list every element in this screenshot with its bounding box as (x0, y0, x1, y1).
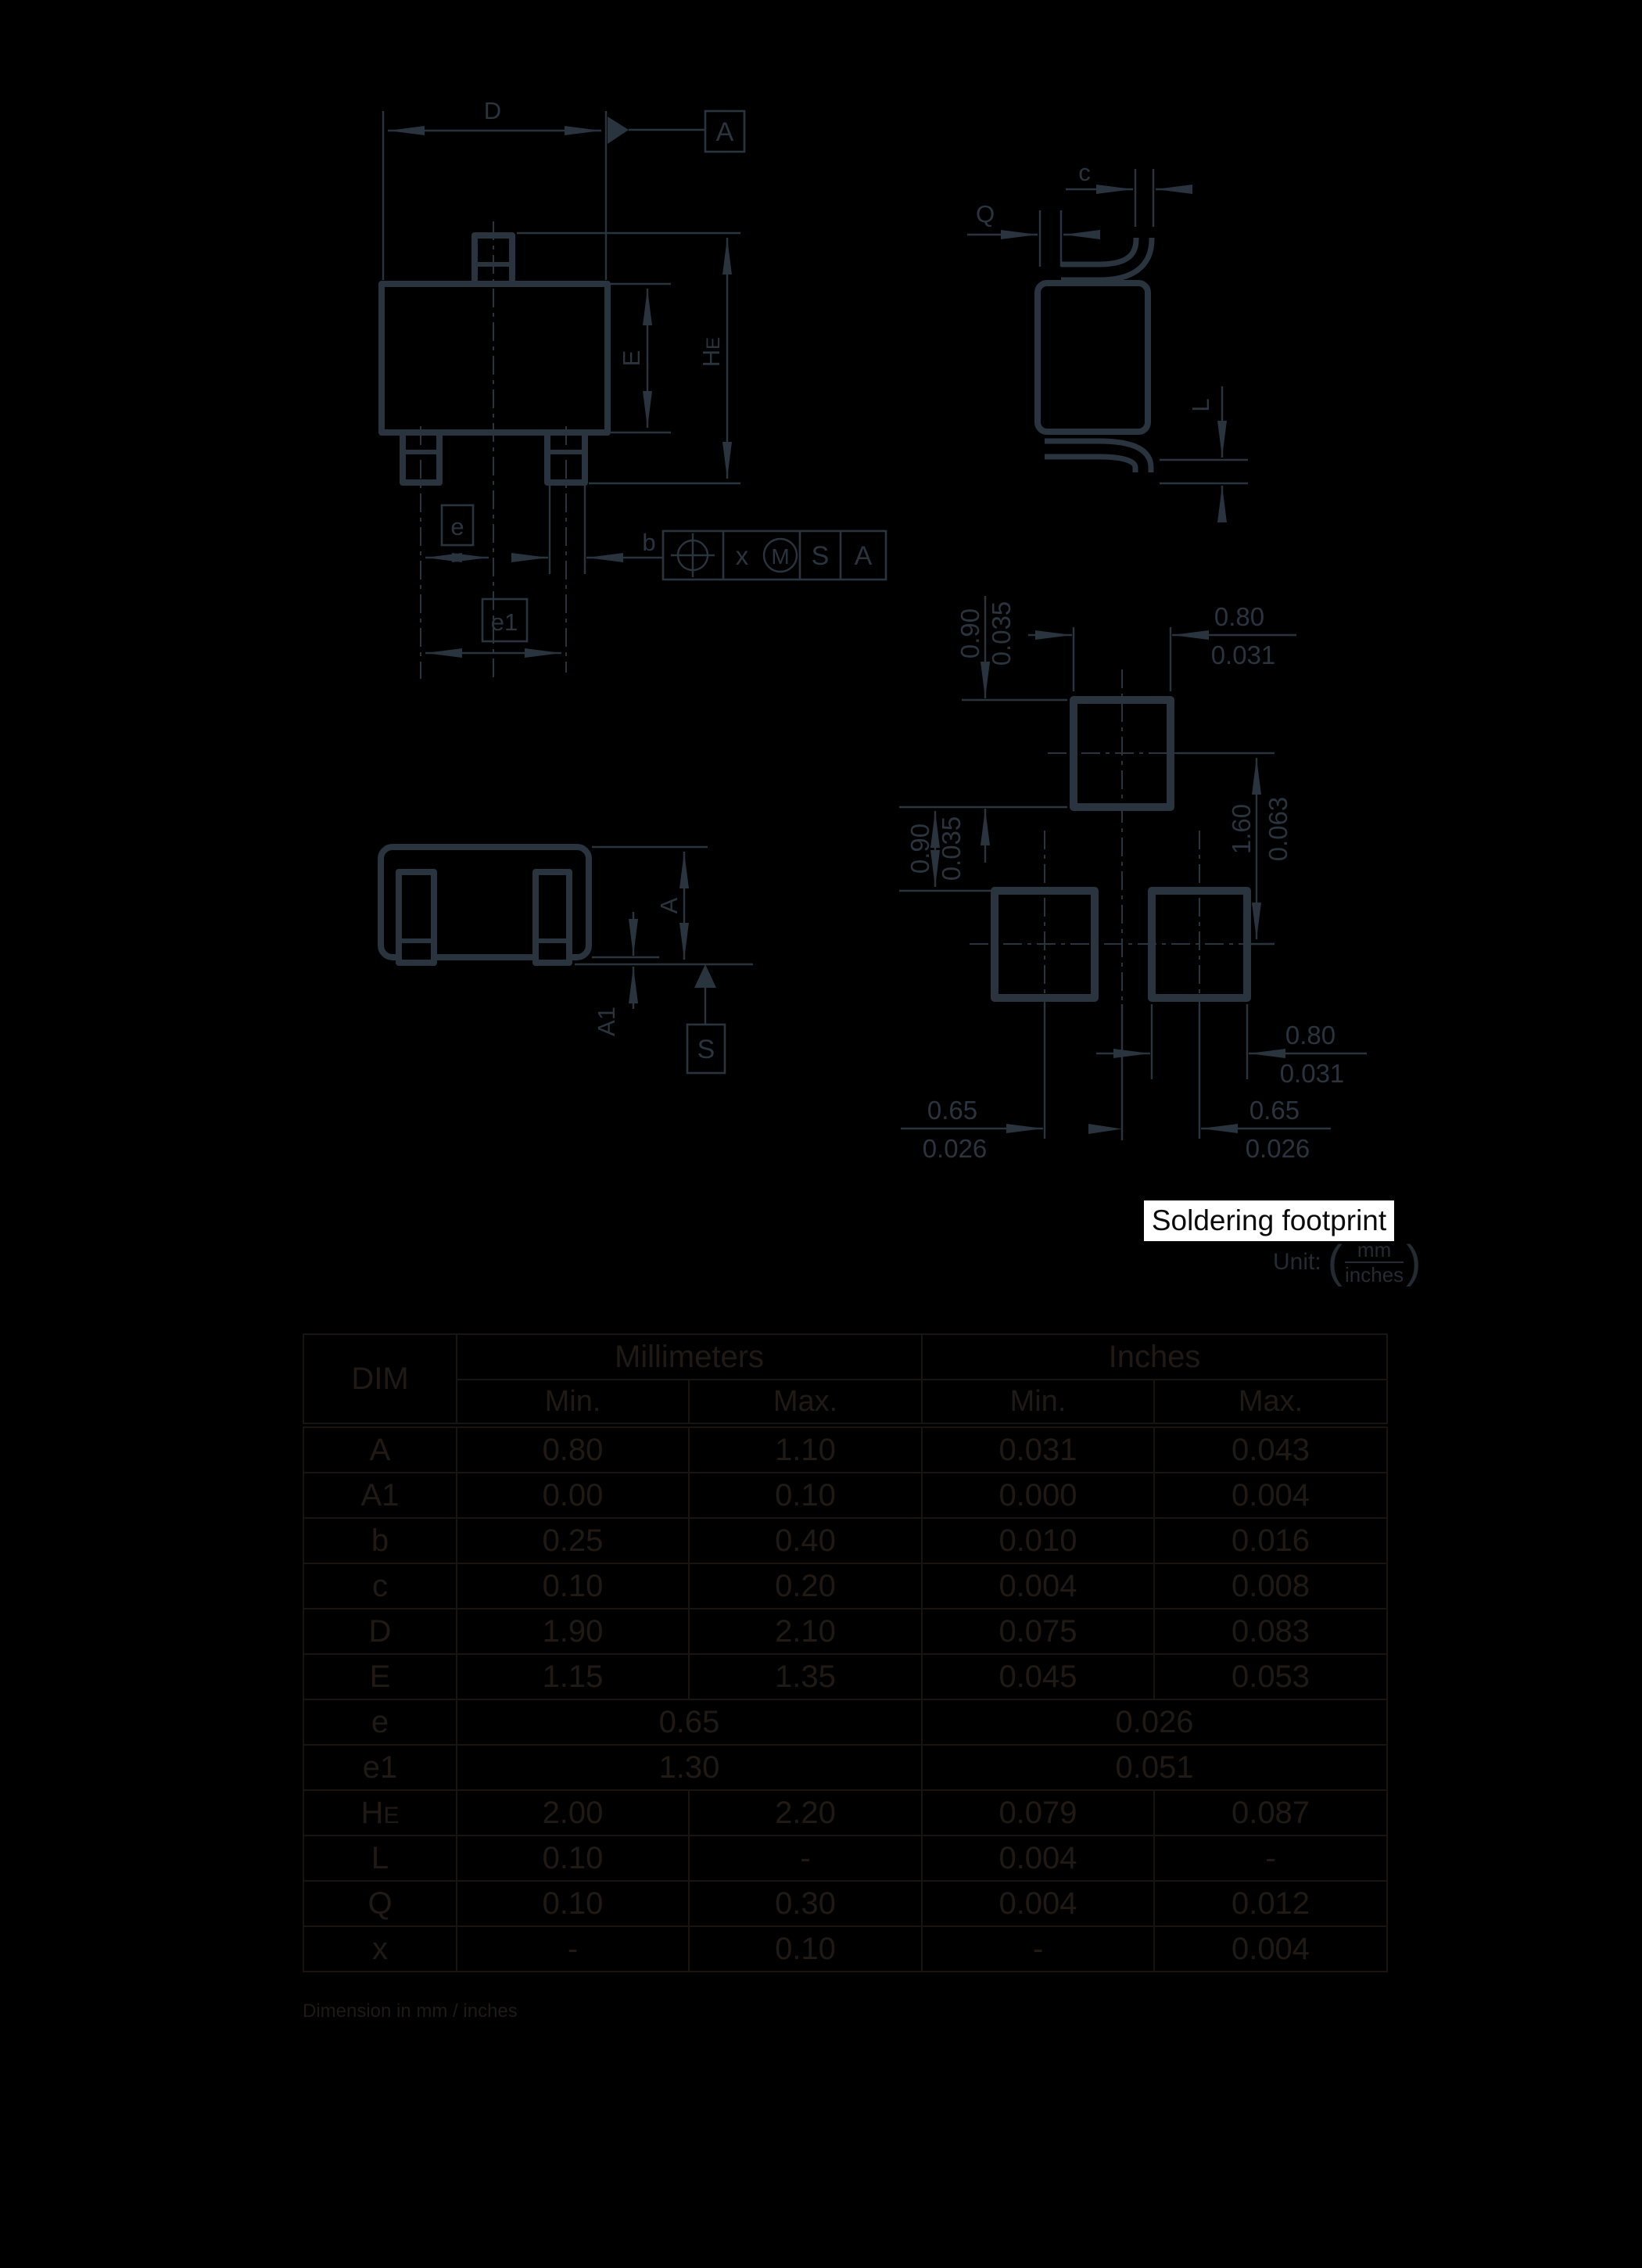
value-cell: 0.004 (1154, 1926, 1387, 1972)
datum-s-label: S (697, 1035, 715, 1064)
dim-L-label: L (1187, 398, 1214, 411)
dim-cell: A (303, 1426, 457, 1473)
value-cell: 2.00 (457, 1790, 689, 1836)
close-paren: ) (1406, 1240, 1421, 1285)
header-mm-min: Min. (457, 1380, 689, 1426)
dimension-table: DIM Millimeters Inches Min. Max. Min. Ma… (303, 1333, 1388, 1972)
value-cell: 0.004 (1154, 1473, 1387, 1518)
value-cell: 0.10 (689, 1926, 922, 1972)
value-cell: 0.087 (1154, 1790, 1387, 1836)
dim-A1: A1 (592, 912, 659, 1036)
value-cell: 1.35 (689, 1654, 922, 1699)
value-cell: 0.10 (689, 1473, 922, 1518)
table-row: E1.151.350.0450.053 (303, 1654, 1387, 1699)
dim-e: e (425, 505, 489, 558)
value-cell: 2.20 (689, 1790, 922, 1836)
fp-bot-width-mm: 0.80 (1285, 1021, 1335, 1050)
value-cell: - (922, 1926, 1154, 1972)
fp-pitch-right-in: 0.026 (1246, 1134, 1310, 1163)
dim-cell: b (303, 1518, 457, 1563)
table-row: e11.300.051 (303, 1745, 1387, 1790)
dim-b-label: b (642, 529, 655, 556)
value-cell: 0.053 (1154, 1654, 1387, 1699)
unit-fraction: mm inches (1345, 1240, 1404, 1285)
value-cell: 1.90 (457, 1609, 689, 1654)
dim-b: b (513, 486, 663, 574)
package-body-side-view (1038, 283, 1148, 432)
fcf-datum-s: S (812, 541, 830, 571)
value-cell: 0.00 (457, 1473, 689, 1518)
table-row: x-0.10-0.004 (303, 1926, 1387, 1972)
dim-cell: x (303, 1926, 457, 1972)
header-dim: DIM (303, 1334, 457, 1426)
dim-D-label: D (484, 97, 501, 124)
dim-cell: Q (303, 1881, 457, 1926)
top-view: D A E HE e e1 (382, 97, 886, 682)
value-cell: - (689, 1836, 922, 1881)
value-cell: 0.20 (689, 1563, 922, 1609)
value-cell: 0.80 (457, 1426, 689, 1473)
front-right-lead (536, 872, 569, 963)
value-cell: 0.65 (457, 1699, 922, 1745)
dim-cell: e (303, 1699, 457, 1745)
soldering-footprint-label: Soldering footprint (1144, 1200, 1394, 1241)
open-paren: ( (1328, 1240, 1343, 1285)
value-cell: 0.012 (1154, 1881, 1387, 1926)
value-cell: 0.031 (922, 1426, 1154, 1473)
unit-label: Unit: (1273, 1249, 1321, 1276)
datum-a-label: A (716, 117, 734, 147)
value-cell: 0.10 (457, 1836, 689, 1881)
fp-dim-bottom-width: 0.80 0.031 (1096, 1004, 1367, 1088)
datum-a-triangle-icon (608, 117, 629, 144)
unit-note: Unit: ( mm inches ) (1273, 1240, 1422, 1285)
fp-row-pitch-in: 0.063 (1264, 797, 1292, 862)
fp-top-pad-h-mm: 0.90 (955, 608, 984, 659)
value-cell: 0.000 (922, 1473, 1154, 1518)
fp-top-pad-h-in: 0.035 (987, 601, 1016, 666)
value-cell: 0.30 (689, 1881, 922, 1926)
value-cell: 0.004 (922, 1563, 1154, 1609)
dim-Q: Q (967, 200, 1085, 267)
value-cell: 0.045 (922, 1654, 1154, 1699)
table-row: A10.000.100.0000.004 (303, 1473, 1387, 1518)
fp-pitch-left-in: 0.026 (923, 1134, 988, 1163)
dim-e-label: e (450, 513, 464, 540)
dim-E-label: E (618, 350, 645, 367)
datum-s-triangle-icon (694, 964, 716, 988)
fp-pitch-right-mm: 0.65 (1249, 1096, 1300, 1125)
front-left-lead (399, 872, 434, 963)
side-view: c Q L (967, 159, 1248, 519)
package-outline-drawing-page: D A E HE e e1 (0, 0, 1642, 2268)
dim-cell: A1 (303, 1473, 457, 1518)
value-cell: 1.10 (689, 1426, 922, 1473)
fp-gap-mm: 0.90 (905, 824, 934, 874)
value-cell: 0.40 (689, 1518, 922, 1563)
value-cell: 0.008 (1154, 1563, 1387, 1609)
package-body-top-view (382, 284, 608, 432)
value-cell: 0.051 (922, 1745, 1387, 1790)
value-cell: 0.10 (457, 1881, 689, 1926)
mid-arrow-icon (1088, 1124, 1122, 1134)
dim-A-label: A (655, 897, 683, 913)
fp-bot-width-in: 0.031 (1280, 1059, 1345, 1088)
value-cell: - (1154, 1836, 1387, 1881)
value-cell: 0.026 (922, 1699, 1387, 1745)
fp-dim-row-pitch: 1.60 0.063 (1177, 753, 1292, 944)
fp-top-width-mm: 0.80 (1214, 602, 1264, 631)
table-row: c0.100.200.0040.008 (303, 1563, 1387, 1609)
value-cell: 0.079 (922, 1790, 1154, 1836)
table-row: b0.250.400.0100.016 (303, 1518, 1387, 1563)
table-row: D1.902.100.0750.083 (303, 1609, 1387, 1654)
value-cell: 0.083 (1154, 1609, 1387, 1654)
value-cell: 1.15 (457, 1654, 689, 1699)
fp-dim-gap: 0.90 0.035 (899, 811, 991, 891)
value-cell: 1.30 (457, 1745, 922, 1790)
fcf-modifier-m: M (771, 544, 789, 569)
dim-D: D A (383, 97, 744, 280)
dim-cell: D (303, 1609, 457, 1654)
value-cell: 0.25 (457, 1518, 689, 1563)
table-row: Q0.100.300.0040.012 (303, 1881, 1387, 1926)
value-cell: - (457, 1926, 689, 1972)
value-cell: 0.016 (1154, 1518, 1387, 1563)
header-millimeters: Millimeters (457, 1334, 922, 1380)
value-cell: 0.010 (922, 1518, 1154, 1563)
dim-A: A (592, 847, 708, 960)
fp-dim-pitches: 0.65 0.026 0.65 0.026 (901, 1096, 1331, 1163)
table-row: e0.650.026 (303, 1699, 1387, 1745)
value-cell: 0.043 (1154, 1426, 1387, 1473)
unit-mm: mm (1345, 1240, 1404, 1263)
fp-pitch-left-mm: 0.65 (927, 1096, 977, 1125)
value-cell: 0.10 (457, 1563, 689, 1609)
value-cell: 0.075 (922, 1609, 1154, 1654)
value-cell: 2.10 (689, 1609, 922, 1654)
dim-A1-label: A1 (593, 1007, 620, 1036)
fcf-datum-a: A (855, 541, 873, 571)
dim-cell: e1 (303, 1745, 457, 1790)
value-cell: 0.004 (922, 1836, 1154, 1881)
fp-row-pitch-mm: 1.60 (1227, 804, 1256, 854)
unit-inches: inches (1345, 1263, 1404, 1285)
dim-c: c (1066, 159, 1175, 227)
dim-e1-label: e1 (491, 608, 518, 636)
dim-HE-label: HE (697, 337, 725, 367)
header-in-min: Min. (922, 1380, 1154, 1426)
table-caption: Dimension in mm / inches (303, 2001, 518, 2022)
fcf-tolerance-x: x (736, 541, 749, 570)
table-row: L0.10-0.004- (303, 1836, 1387, 1881)
header-mm-max: Max. (689, 1380, 922, 1426)
header-inches: Inches (922, 1334, 1387, 1380)
value-cell: 0.004 (922, 1881, 1154, 1926)
soldering-footprint: 0.80 0.031 0.90 0.035 0.90 0.035 1.60 0.… (899, 596, 1367, 1163)
dim-cell: E (303, 1654, 457, 1699)
dim-cell: c (303, 1563, 457, 1609)
table-row: HE2.002.200.0790.087 (303, 1790, 1387, 1836)
fp-gap-in: 0.035 (937, 816, 966, 881)
dim-L: L (1160, 386, 1248, 519)
datum-s: S (687, 964, 725, 1073)
table-row: A0.801.100.0310.043 (303, 1426, 1387, 1473)
front-view: A A1 S (381, 847, 753, 1073)
dim-E: E (611, 284, 671, 432)
fp-dim-top-width: 0.80 0.031 (1028, 602, 1296, 691)
dim-cell: HE (303, 1790, 457, 1836)
dim-table-body: A0.801.100.0310.043A10.000.100.0000.004b… (303, 1426, 1387, 1972)
header-in-max: Max. (1154, 1380, 1387, 1426)
fp-top-width-in: 0.031 (1211, 641, 1276, 669)
dim-c-label: c (1078, 159, 1091, 186)
feature-control-frame: x M S A (663, 531, 886, 580)
dim-Q-label: Q (976, 200, 995, 228)
dim-cell: L (303, 1836, 457, 1881)
